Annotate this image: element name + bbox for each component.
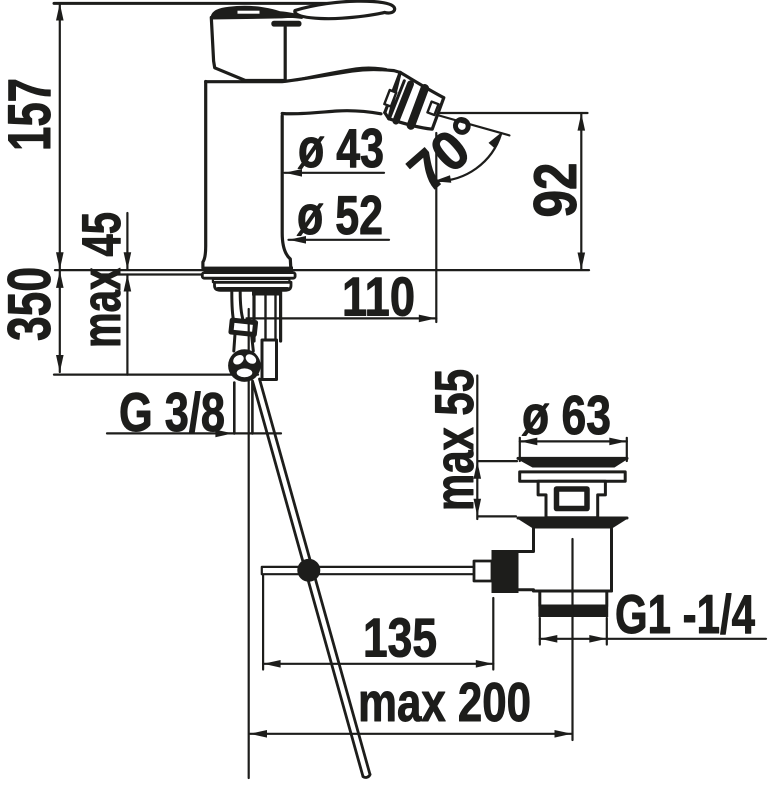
svg-text:110: 110 bbox=[342, 266, 415, 328]
svg-text:max 55: max 55 bbox=[423, 369, 485, 511]
svg-text:G1 -1/4: G1 -1/4 bbox=[615, 583, 755, 645]
svg-text:ø 63: ø 63 bbox=[522, 384, 611, 446]
svg-text:ø 43: ø 43 bbox=[298, 117, 384, 179]
svg-text:ø 52: ø 52 bbox=[297, 184, 383, 246]
svg-text:max 45: max 45 bbox=[70, 212, 132, 348]
svg-text:350: 350 bbox=[0, 267, 63, 341]
svg-text:135: 135 bbox=[363, 607, 437, 669]
svg-text:max 200: max 200 bbox=[358, 671, 531, 733]
svg-text:92: 92 bbox=[522, 163, 589, 218]
svg-text:157: 157 bbox=[0, 78, 63, 151]
